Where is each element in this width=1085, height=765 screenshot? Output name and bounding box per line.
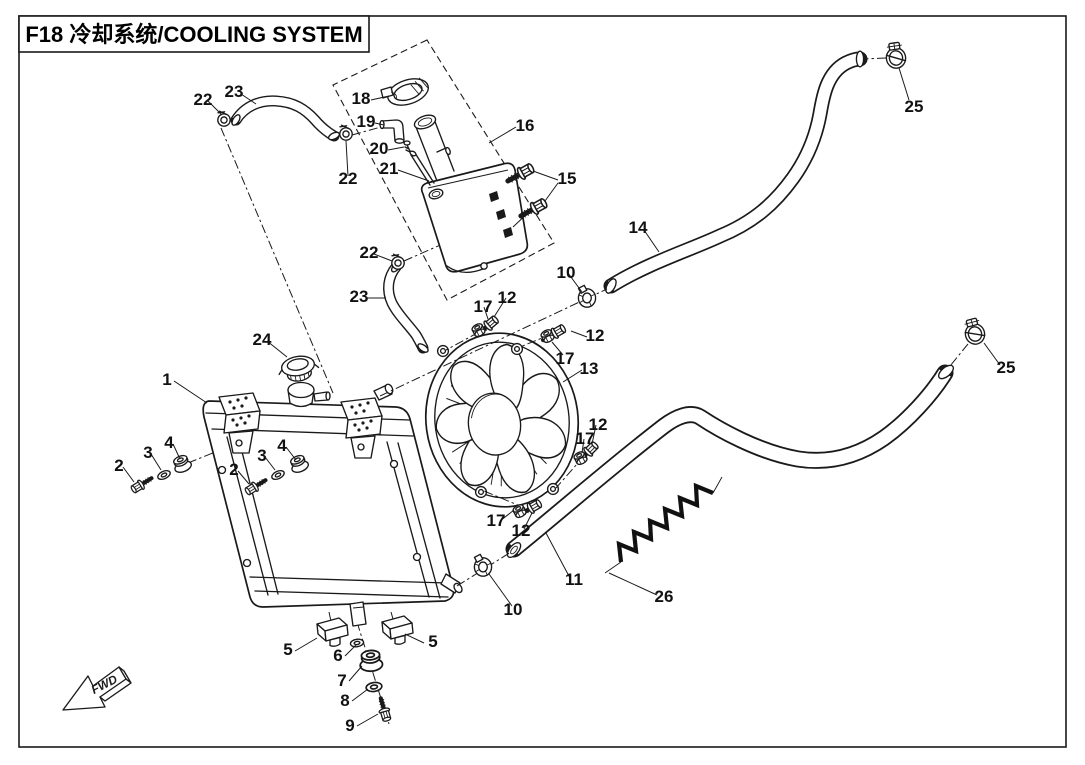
part-callout-8: 8: [340, 691, 349, 710]
part-callout-21: 21: [380, 159, 399, 178]
part-callout-2: 2: [229, 460, 238, 479]
part-callout-22: 22: [194, 90, 213, 109]
part-callout-22: 22: [360, 243, 379, 262]
part-callout-15: 15: [558, 169, 577, 188]
part-callout-5: 5: [283, 640, 292, 659]
part-callout-12: 12: [586, 326, 605, 345]
part-callout-19: 19: [357, 112, 376, 131]
part-callout-17: 17: [474, 297, 493, 316]
part-callout-17: 17: [556, 349, 575, 368]
part-callout-25: 25: [905, 97, 924, 116]
part-callout-3: 3: [143, 443, 152, 462]
part-callout-10: 10: [557, 263, 576, 282]
part-callout-23: 23: [350, 287, 369, 306]
part-callout-2: 2: [114, 456, 123, 475]
cooling-system-exploded-diagram: F18 冷却系统/COOLING SYSTEM: [0, 0, 1085, 765]
part-callout-12: 12: [498, 288, 517, 307]
grommet-7: [359, 650, 383, 673]
part-callout-20: 20: [370, 139, 389, 158]
part-callout-3: 3: [257, 446, 266, 465]
part-callout-26: 26: [655, 587, 674, 606]
part-callout-17: 17: [576, 429, 595, 448]
part-callout-10: 10: [504, 600, 523, 619]
part-callout-22: 22: [339, 169, 358, 188]
part-callout-4: 4: [164, 433, 174, 452]
part-callout-9: 9: [345, 716, 354, 735]
part-callout-16: 16: [516, 116, 535, 135]
part-callout-24: 24: [253, 330, 272, 349]
part-callout-17: 17: [487, 511, 506, 530]
part-callout-13: 13: [580, 359, 599, 378]
part-callout-4: 4: [277, 436, 287, 455]
part-callout-6: 6: [333, 646, 342, 665]
part-callout-7: 7: [337, 671, 346, 690]
part-callout-14: 14: [629, 218, 648, 237]
radiator-bottom-tab: [350, 602, 366, 626]
part-callout-12: 12: [512, 521, 531, 540]
part-callout-5: 5: [428, 632, 437, 651]
page-title: F18 冷却系统/COOLING SYSTEM: [25, 22, 362, 47]
part-callout-1: 1: [162, 370, 171, 389]
part-callout-25: 25: [997, 358, 1016, 377]
part-callout-23: 23: [225, 82, 244, 101]
part-callout-11: 11: [565, 570, 583, 589]
part-callout-18: 18: [352, 89, 371, 108]
